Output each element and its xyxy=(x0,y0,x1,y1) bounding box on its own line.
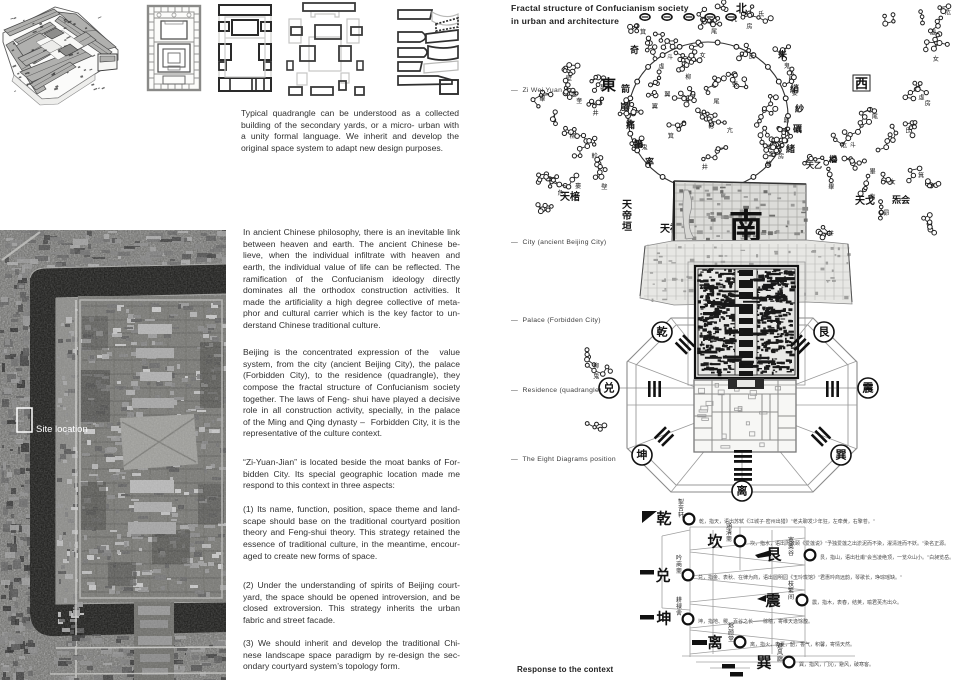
svg-text:帝: 帝 xyxy=(622,209,632,222)
svg-text:綃: 綃 xyxy=(790,83,799,94)
svg-text:艮，指山，语出杜甫"会当凌绝顶，一览众山小。"白昶览岳。: 艮，指山，语出杜甫"会当凌绝顶，一览众山小。"白昶览岳。 xyxy=(820,554,954,561)
svg-text:乾: 乾 xyxy=(657,325,668,339)
svg-text:尾: 尾 xyxy=(872,113,878,120)
svg-text:房: 房 xyxy=(925,100,931,108)
svg-text:堂: 堂 xyxy=(728,635,734,643)
svg-text:柳: 柳 xyxy=(593,362,599,370)
svg-text:危: 危 xyxy=(945,9,951,17)
svg-text:房: 房 xyxy=(746,23,752,31)
svg-text:商: 商 xyxy=(676,561,682,569)
svg-text:斋: 斋 xyxy=(726,535,732,543)
svg-text:廊: 廊 xyxy=(777,655,783,663)
svg-text:天棓: 天棓 xyxy=(560,190,580,203)
svg-text:兑，指金、表秋、在律为商，语出圆明园《玉玲珑馆》"君惠吟商远: 兑，指金、表秋、在律为商，语出圆明园《玉玲珑馆》"君惠吟商远韵，琴歌长，琤琮瑶缺… xyxy=(698,574,902,581)
svg-text:巽: 巽 xyxy=(756,655,771,672)
svg-text:耕: 耕 xyxy=(676,596,682,604)
svg-text:尾: 尾 xyxy=(713,98,719,105)
svg-text:柳: 柳 xyxy=(570,132,576,140)
svg-text:井: 井 xyxy=(828,229,834,237)
svg-text:震: 震 xyxy=(862,382,875,395)
svg-text:箕: 箕 xyxy=(640,28,646,36)
svg-text:苦: 苦 xyxy=(678,505,684,513)
svg-text:畢: 畢 xyxy=(870,169,876,176)
svg-text:柳: 柳 xyxy=(685,73,691,81)
svg-text:震，指木，表春，结荚，喻君芙杰出众。: 震，指木，表春，结荚，喻君芙杰出众。 xyxy=(812,599,902,606)
svg-text:坎，指水，语出周敦颐《爱莲说》"予独爱莲之出淤泥而不染，濯清: 坎，指水，语出周敦颐《爱莲说》"予独爱莲之出淤泥而不染，濯清涟而不妖。"染名正源… xyxy=(750,540,949,547)
svg-text:畢: 畢 xyxy=(539,96,545,103)
svg-text:虛: 虛 xyxy=(658,62,664,70)
svg-text:痛: 痛 xyxy=(625,119,635,130)
svg-text:虛: 虛 xyxy=(918,94,924,102)
svg-text:嵐: 嵐 xyxy=(619,101,630,112)
svg-text:壁: 壁 xyxy=(601,183,607,191)
svg-text:井: 井 xyxy=(593,109,599,117)
svg-text:簫: 簫 xyxy=(633,138,643,149)
svg-text:箕: 箕 xyxy=(668,132,674,140)
svg-text:箕: 箕 xyxy=(918,172,924,180)
svg-text:觜: 觜 xyxy=(766,160,772,168)
svg-text:斋: 斋 xyxy=(676,567,682,575)
svg-text:艮: 艮 xyxy=(819,325,831,339)
svg-text:枝: 枝 xyxy=(788,580,794,588)
svg-text:坤: 坤 xyxy=(656,610,671,628)
svg-text:氐: 氐 xyxy=(749,52,755,60)
svg-text:巽，指风，门沁，避风，破寒客。: 巽，指风，门沁，避风，破寒客。 xyxy=(799,661,874,668)
svg-text:翼: 翼 xyxy=(652,103,658,110)
svg-text:禄: 禄 xyxy=(676,603,682,611)
svg-text:鬼: 鬼 xyxy=(784,62,790,70)
svg-text:鬼: 鬼 xyxy=(593,372,599,380)
svg-text:吟: 吟 xyxy=(676,554,682,562)
svg-text:舍: 舍 xyxy=(676,609,682,617)
svg-text:昴: 昴 xyxy=(783,117,789,124)
svg-text:间: 间 xyxy=(788,593,794,601)
svg-text:房: 房 xyxy=(778,153,784,161)
svg-text:涵: 涵 xyxy=(726,522,732,530)
svg-text:畢: 畢 xyxy=(828,184,834,191)
svg-text:天乙: 天乙 xyxy=(806,161,822,170)
svg-text:昴: 昴 xyxy=(883,210,889,217)
svg-text:清: 清 xyxy=(726,529,732,537)
svg-text:井: 井 xyxy=(702,163,708,171)
svg-text:女: 女 xyxy=(933,55,939,63)
svg-text:氐: 氐 xyxy=(905,127,911,135)
svg-text:离，指火，表夏，韶，香气，积馨，寄情天然。: 离，指火，表夏，韶，香气，积馨，寄情天然。 xyxy=(750,641,855,648)
svg-text:艮: 艮 xyxy=(766,547,782,564)
svg-text:乾: 乾 xyxy=(656,510,671,528)
svg-text:北: 北 xyxy=(736,1,747,15)
svg-text:风: 风 xyxy=(777,650,783,657)
svg-text:兑: 兑 xyxy=(604,381,615,395)
svg-text:避: 避 xyxy=(777,642,783,650)
svg-text:婁: 婁 xyxy=(571,91,577,99)
svg-text:垣: 垣 xyxy=(622,220,632,233)
svg-text:兑: 兑 xyxy=(655,567,670,585)
svg-text:箭: 箭 xyxy=(621,83,630,94)
svg-text:Site location: Site location xyxy=(36,424,88,435)
svg-text:翼: 翼 xyxy=(664,91,670,98)
svg-text:亢: 亢 xyxy=(727,127,733,135)
svg-text:斗: 斗 xyxy=(850,142,856,149)
svg-text:檔: 檔 xyxy=(829,154,837,164)
svg-text:張: 張 xyxy=(732,82,738,89)
svg-text:緒: 緒 xyxy=(786,143,795,154)
svg-text:震: 震 xyxy=(765,592,781,610)
svg-text:率: 率 xyxy=(645,156,654,167)
svg-text:炁会: 炁会 xyxy=(891,194,911,205)
svg-text:掣: 掣 xyxy=(678,498,684,506)
svg-text:婁: 婁 xyxy=(575,182,581,190)
svg-text:礪: 礪 xyxy=(793,124,802,134)
svg-text:离: 离 xyxy=(707,634,722,652)
svg-text:坤，指地、稷、百谷之长——稼穑，寄维天逸馀馥。: 坤，指地、稷、百谷之长——稼穑，寄维天逸馀馥。 xyxy=(698,618,813,625)
svg-text:亢: 亢 xyxy=(731,16,737,24)
svg-text:繁: 繁 xyxy=(788,587,794,595)
svg-text:米: 米 xyxy=(777,49,788,60)
svg-text:奥: 奥 xyxy=(788,543,794,551)
svg-text:天戈: 天戈 xyxy=(855,194,875,207)
svg-text:宽: 宽 xyxy=(788,536,794,544)
svg-text:奇: 奇 xyxy=(630,44,639,55)
svg-text:西: 西 xyxy=(855,76,868,91)
svg-text:坤: 坤 xyxy=(637,448,648,462)
svg-text:奎: 奎 xyxy=(576,97,583,105)
svg-text:斗: 斗 xyxy=(667,54,673,61)
svg-text:烬: 烬 xyxy=(728,622,734,630)
svg-text:尾: 尾 xyxy=(711,29,717,36)
svg-text:危: 危 xyxy=(841,142,847,150)
svg-text:谷: 谷 xyxy=(788,549,794,557)
svg-text:颜: 颜 xyxy=(728,629,734,637)
svg-text:天: 天 xyxy=(622,199,633,211)
svg-text:巽: 巽 xyxy=(836,449,847,462)
svg-text:東: 東 xyxy=(601,76,616,94)
svg-text:女: 女 xyxy=(890,178,896,186)
svg-text:紗: 紗 xyxy=(795,103,804,114)
svg-text:坎: 坎 xyxy=(707,533,722,551)
svg-text:女: 女 xyxy=(700,52,706,60)
